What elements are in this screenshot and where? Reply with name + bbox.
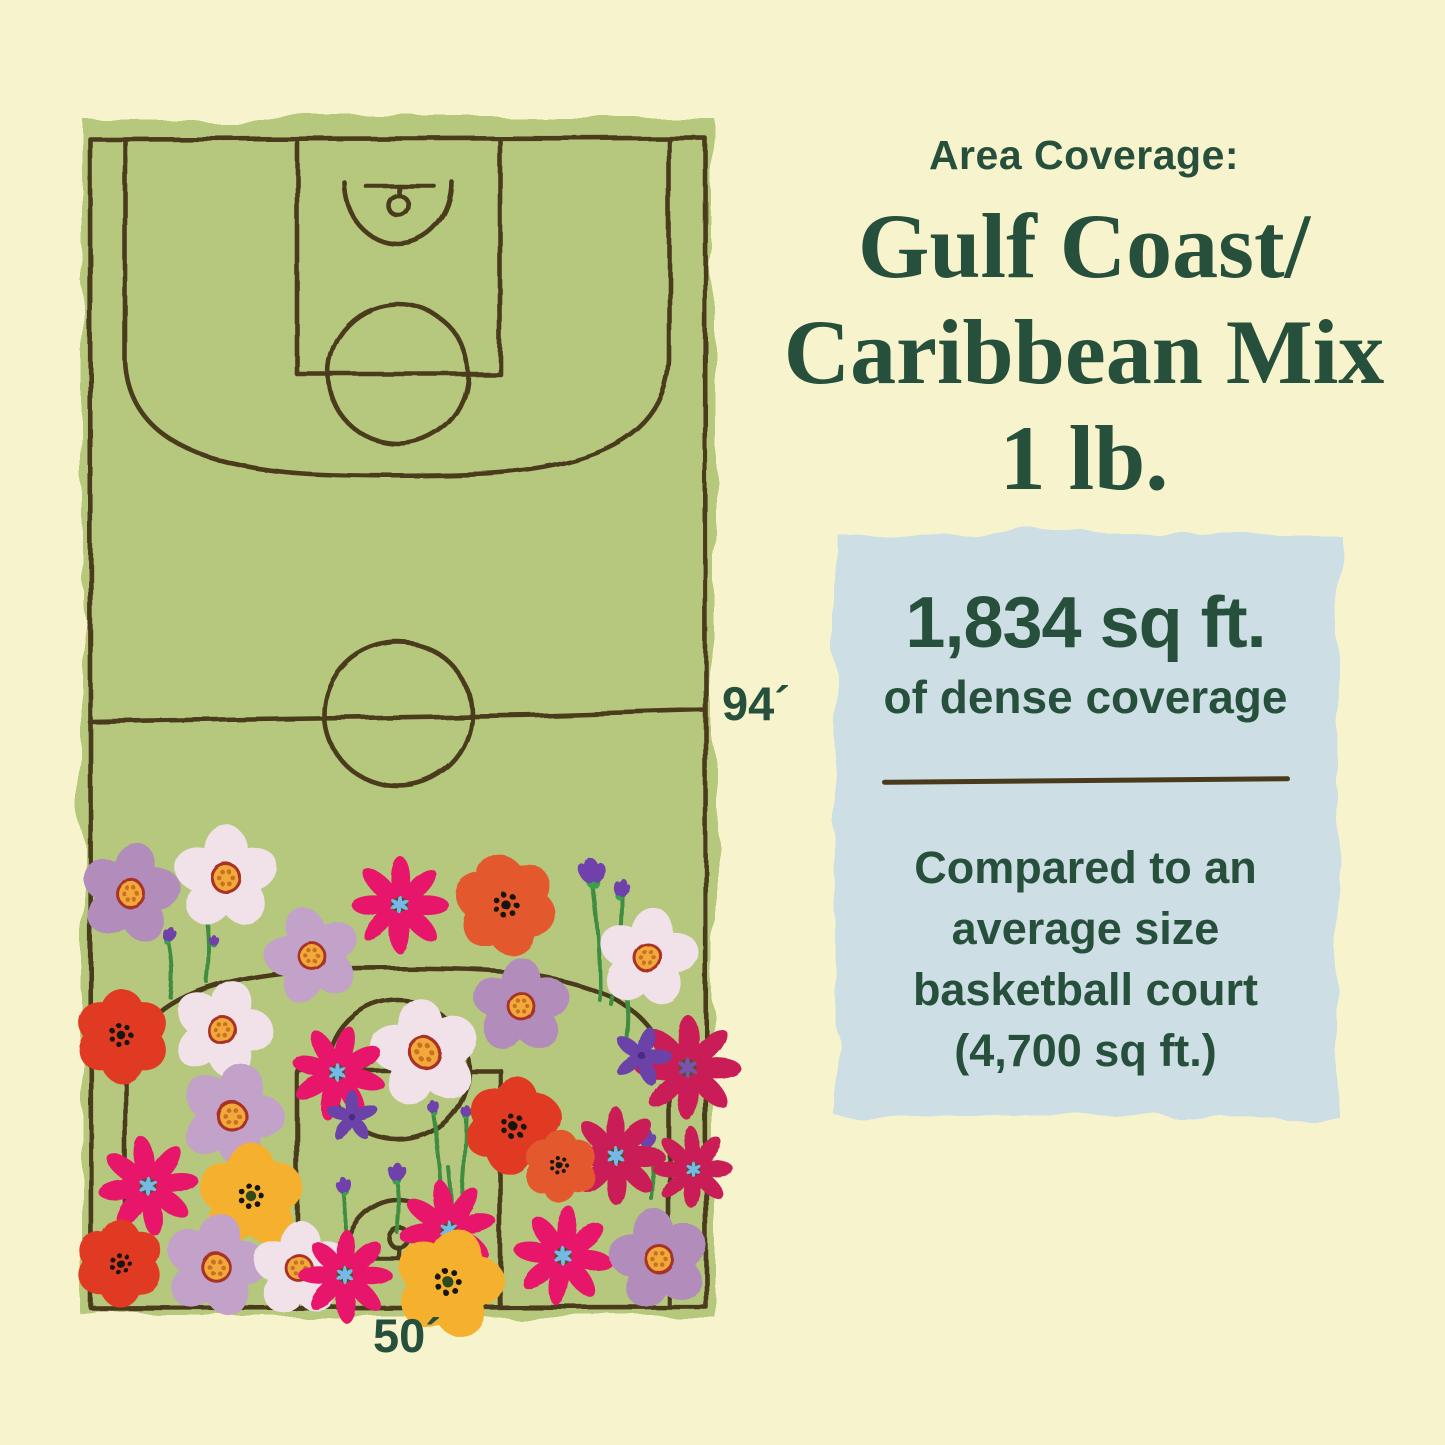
flower-cosmos: [351, 856, 449, 954]
coverage-area-caption: of dense coverage: [853, 670, 1318, 724]
court-length-label: 94´: [722, 676, 832, 731]
kicker-label: Area Coverage:: [768, 132, 1400, 179]
coverage-area-value: 1,834 sq ft.: [853, 582, 1318, 664]
comparison-note: Compared to an average size basketball c…: [853, 837, 1318, 1081]
coverage-infobox: 1,834 sq ft. of dense coverage Compared …: [853, 582, 1318, 1081]
title-line-3: 1 lb.: [768, 405, 1400, 511]
title-line-1: Gulf Coast/: [768, 193, 1400, 299]
court-width-label: 50´: [352, 1308, 462, 1363]
header-block: Area Coverage: Gulf Coast/ Caribbean Mix…: [768, 132, 1400, 511]
flower-cosmos: [651, 1127, 733, 1209]
hand-drawn-divider: [881, 776, 1289, 785]
page-title: Gulf Coast/ Caribbean Mix 1 lb.: [768, 193, 1400, 511]
title-line-2: Caribbean Mix: [768, 299, 1400, 405]
infographic-canvas: Area Coverage: Gulf Coast/ Caribbean Mix…: [0, 0, 1445, 1445]
